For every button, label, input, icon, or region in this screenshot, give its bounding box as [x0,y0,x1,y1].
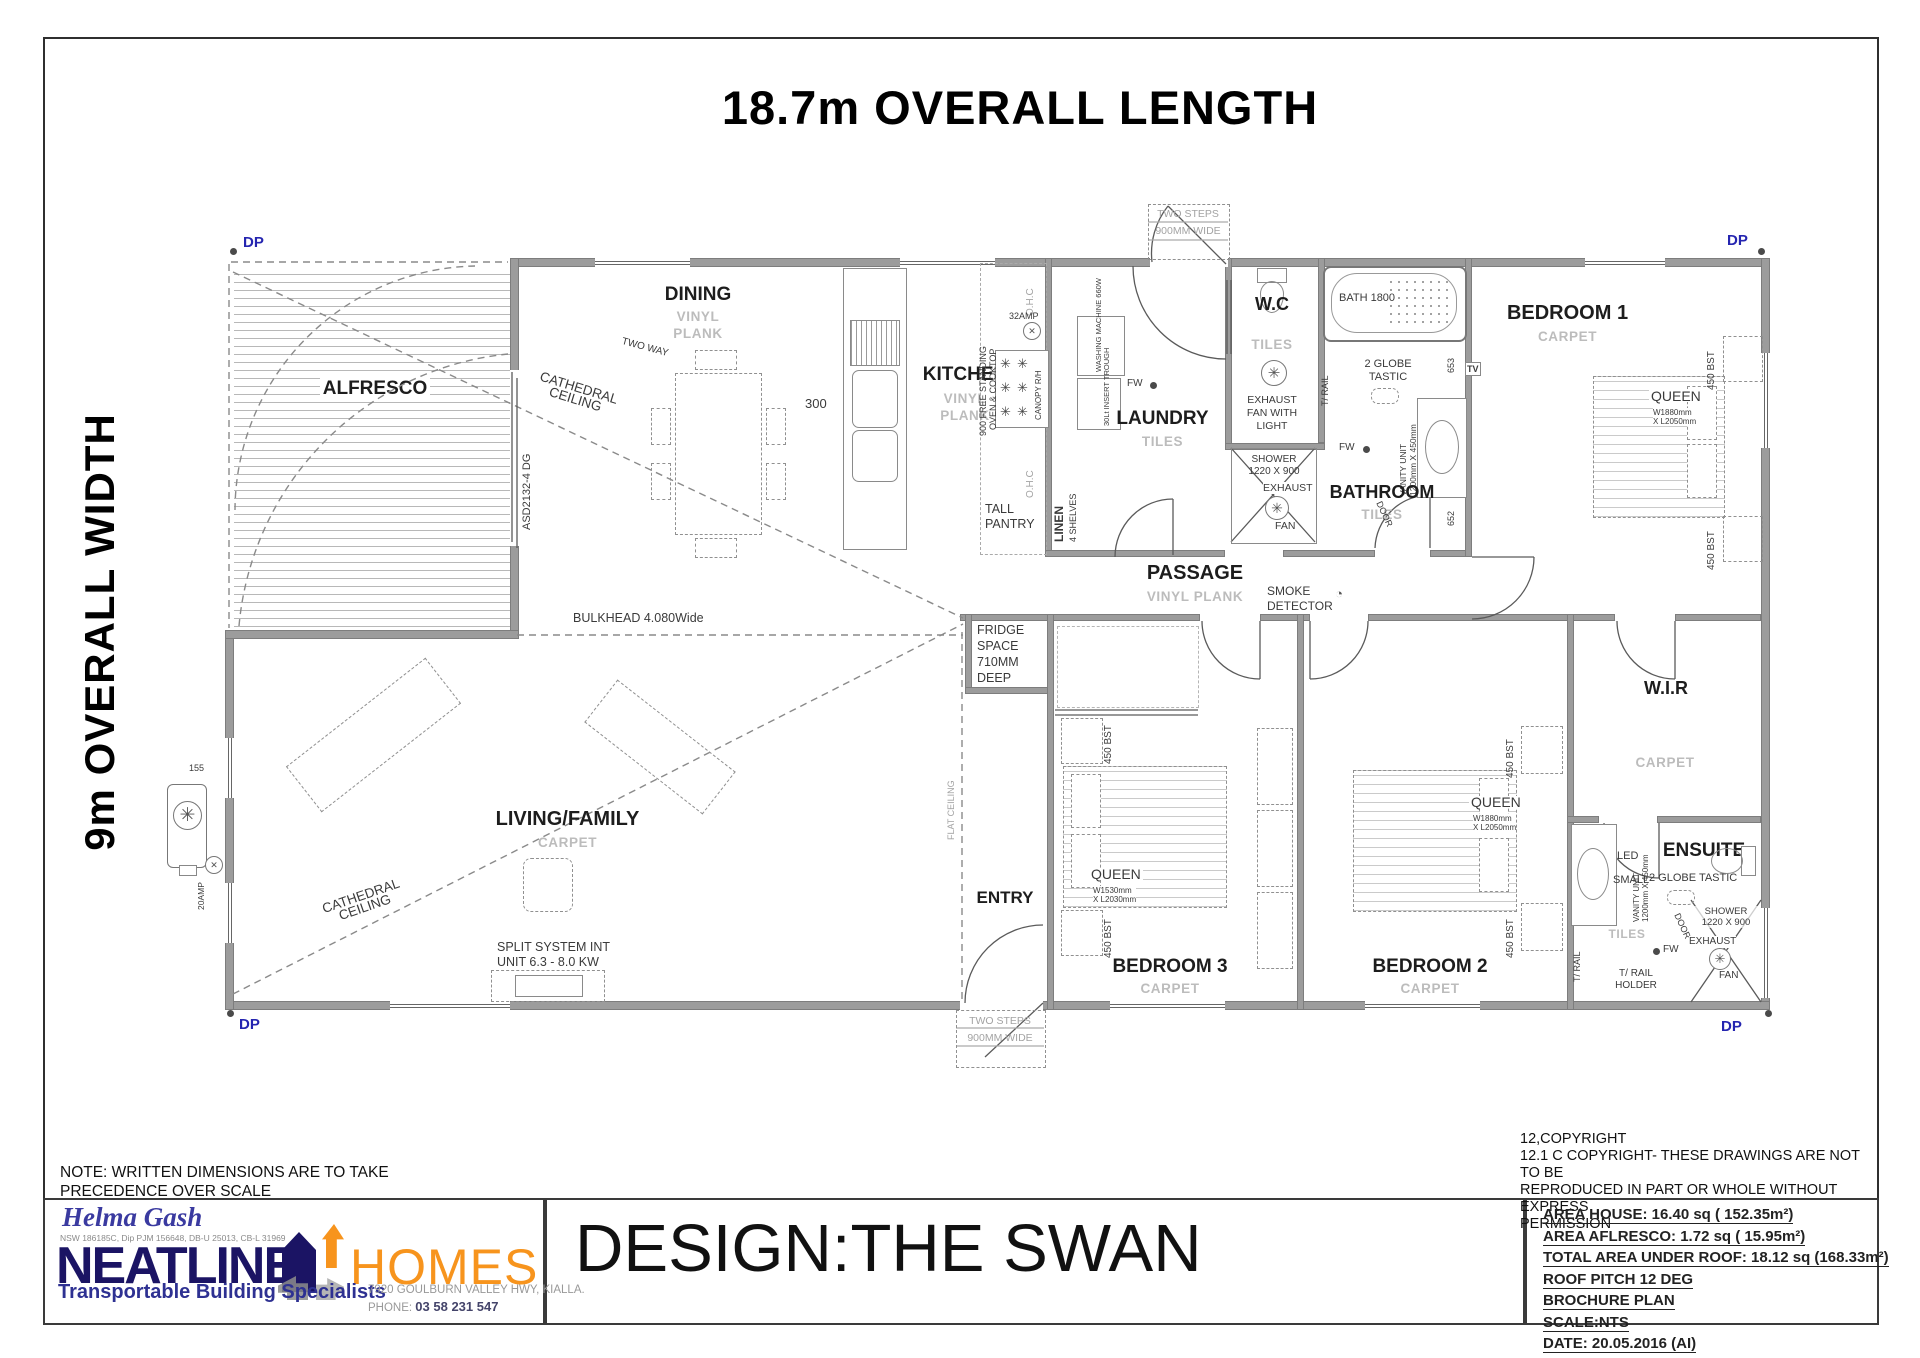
fw-dot-ensuite [1653,948,1660,955]
wall-left [225,630,234,1010]
dining-chair-6 [766,463,786,500]
floor-label-passage: VINYL PLANK [1125,588,1265,605]
bedroom3-robe-1 [1257,728,1293,805]
floor-label-living: CARPET [470,834,665,851]
wall-passage-bottom-3 [1368,614,1615,621]
living-rug [523,858,573,912]
window-living-left-1 [225,738,234,798]
external-ac-fan-icon: ✳ [173,801,202,830]
bst-label-bedroom1-a: 450 BST [1706,351,1718,390]
wall-fridge-left [965,614,972,694]
dining-chair-1 [695,350,737,370]
overall-width-title: 9m OVERALL WIDTH [76,347,124,917]
floor-label-wir: CARPET [1615,754,1715,771]
wall-passage-bottom-1 [960,614,1200,621]
bath-label: BATH 1800 [1337,292,1397,304]
window-living-bottom [390,1001,510,1010]
bedroom2-pillow-2 [1479,838,1509,892]
wall-passage-top-1 [1045,550,1225,557]
ensuite-fan-word: FAN [1719,970,1738,982]
room-label-laundry: LAUNDRY [1100,408,1225,430]
opening-asd-slider [510,370,519,546]
spec-roof-pitch: ROOF PITCH 12 DEG [1543,1271,1693,1289]
ensuite-fan-icon: ✳ [1709,948,1731,970]
fw-dot-bathroom [1363,446,1370,453]
wall-entry-bed3 [1047,614,1054,1010]
room-label-living: LIVING/FAMILY [470,808,665,831]
flat-ceiling-label: FLAT CEILING [945,780,957,840]
design-title: DESIGN:THE SWAN [575,1210,1202,1287]
globe-tastic-bathroom: 2 GLOBETASTIC [1351,358,1425,384]
room-label-bedroom2: BEDROOM 2 [1360,956,1500,978]
downpipe-dot-tl [230,248,237,255]
ensuite-toilet-cistern [1741,846,1756,876]
bedroom3-queen-dims: W1530mmX L2030mm [1093,886,1136,904]
oven-label-2: OVEN & COOKTOP [987,349,999,430]
linen-shelves-label: 4 SHELVES [1067,494,1079,542]
wall-wir-ensuite-1 [1567,816,1599,823]
downpipe-label-br: DP [1721,1018,1742,1035]
downpipe-dot-tr [1758,248,1765,255]
dining-chair-3 [651,408,671,445]
trail-holder-label: T/ RAILHOLDER [1607,968,1665,992]
room-label-bedroom1: BEDROOM 1 [1490,302,1645,325]
wc-exhaust-label: EXHAUSTFAN WITHLIGHT [1225,394,1319,433]
ensuite-vanity-basin [1577,848,1609,900]
kitchen-sink-1 [852,370,898,428]
helma-gash-signature: Helma Gash [62,1202,202,1233]
wall-living-top [225,630,519,639]
dim-652: 652 [1445,511,1457,526]
spec-brochure-plan: BROCHURE PLAN [1543,1292,1675,1310]
bathtub [1323,266,1467,342]
brand-tagline: Transportable Building Specialists [58,1281,386,1304]
room-label-passage: PASSAGE [1125,562,1265,585]
bedroom2-bst-2 [1521,903,1563,951]
wall-passage-bottom-4 [1675,614,1761,621]
bedroom1-pillow-2 [1687,444,1717,498]
external-ac-foot [179,865,197,876]
living-sofa-1 [286,658,461,813]
cathedral-ceiling-label-1: CATHEDRALCEILING [526,368,629,420]
window-bedroom1-top [1585,258,1665,267]
living-sofa-2 [584,680,735,815]
cooktop-burners: ✳✳✳✳✳✳ [997,352,1031,424]
wall-bed3-bed2 [1297,614,1304,1010]
amp32-label: 32AMP [1009,310,1039,322]
room-label-wir: W.I.R [1621,678,1711,699]
power-cross-icon-kitchen: ✕ [1023,322,1041,340]
spec-scale: SCALE:NTS [1543,1314,1629,1332]
dining-chair-4 [651,463,671,500]
spec-area-alfresco: AREA AFLRESCO: 1.72 sq ( 15.95m²) [1543,1228,1805,1246]
overall-length-title: 18.7m OVERALL LENGTH [640,80,1400,135]
floor-label-wc: TILES [1237,336,1307,353]
drawing-sheet: 18.7m OVERALL LENGTH 9m OVERALL WIDTH AL… [0,0,1920,1358]
bst-label-bedroom2-a: 450 BST [1505,739,1517,778]
bedroom2-queen-dims: W1880mmX L2050mm [1473,814,1516,832]
smoke-detector-label: SMOKEDETECTOR [1267,584,1333,614]
bedroom3-bst-2 [1061,910,1103,956]
fw-label-ensuite: FW [1663,944,1679,956]
linen-label: LINEN [1053,506,1065,542]
room-label-alfresco: ALFRESCO [295,378,455,400]
window-ensuite-right [1761,908,1770,998]
bathroom-shower-exhaust: EXHAUST [1263,482,1313,494]
bedroom2-queen-label: QUEEN [1469,796,1523,808]
steps-bottom-label1: TWO STEPS [965,1015,1035,1027]
window-living-left-2 [225,883,234,943]
spec-date: DATE: 20.05.2016 (AI) [1543,1335,1696,1353]
power-cross-icon-ac: ✕ [205,856,223,874]
ensuite-light-icon [1667,890,1695,905]
floor-label-dining: VINYLPLANK [643,308,753,342]
steps-top-label1: TWO STEPS [1153,208,1223,220]
dim-653: 653 [1445,358,1457,373]
bathroom-shower-label: SHOWER1220 X 900 [1235,454,1313,478]
brand-phone: PHONE: 03 58 231 547 [368,1299,498,1314]
brand-address: 7920 GOULBURN VALLEY HWY, KIALLA. [368,1284,585,1296]
split-system-label: SPLIT SYSTEM INTUNIT 6.3 - 8.0 KW [497,940,610,970]
dining-chair-5 [766,408,786,445]
room-label-bedroom3: BEDROOM 3 [1100,956,1240,978]
ensuite-exhaust-label: EXHAUST [1689,936,1736,948]
fw-label-laundry: FW [1127,378,1143,390]
wall-fridge-bottom [965,687,1054,694]
bedroom3-robe-3 [1257,892,1293,969]
kitchen-drainer [850,320,900,366]
canopy-label: CANOPY R/H [1033,370,1045,420]
wall-wir-ensuite-2 [1657,816,1761,823]
pantry-label: TALLPANTRY [985,502,1035,532]
spec-total-area: TOTAL AREA UNDER ROOF: 18.12 sq (168.33m… [1543,1249,1889,1267]
bedroom1-queen-dims: W1880mmX L2050mm [1653,408,1696,426]
downpipe-dot-bl [227,1010,234,1017]
room-label-dining: DINING [643,284,753,306]
bulkhead-label: BULKHEAD 4.080Wide [573,612,704,624]
window-bedroom3 [1110,1001,1225,1010]
window-dining [595,258,690,267]
bathroom-vanity-basin [1425,420,1459,474]
fridge-label: FRIDGESPACE710MMDEEP [977,622,1024,686]
steps-top-label2: 900MM WIDE [1151,225,1225,237]
amp20-label: 20AMP [195,882,207,910]
downpipe-dot-br [1765,1010,1772,1017]
bedroom1-queen-label: QUEEN [1649,390,1703,402]
bedroom3-queen-label: QUEEN [1089,868,1143,880]
bedroom2-bst-1 [1521,726,1563,774]
ohc-label-bottom: O.H.C [1025,470,1037,498]
bst-label-bedroom1-b: 450 BST [1706,531,1718,570]
bedroom1-bst-2 [1723,516,1763,562]
downpipe-label-tr: DP [1727,232,1748,249]
downpipe-label-bl: DP [239,1016,260,1033]
bst-label-bedroom3-b: 450 BST [1103,919,1115,958]
alfresco-deck-hatch [234,267,510,630]
ensuite-toilet-bowl [1711,848,1743,874]
bedroom3-bst-1 [1061,718,1103,764]
trail-label-ensuite: T/ RAIL [1571,951,1583,982]
window-bedroom2 [1365,1001,1480,1010]
fw-dot-laundry [1150,382,1157,389]
bathroom-light-icon [1371,388,1399,404]
note-text: NOTE: WRITTEN DIMENSIONS ARE TO TAKEPREC… [60,1163,389,1201]
cathedral-ceiling-label-2: CATHEDRALCEILING [312,874,414,929]
downpipe-label-tl: DP [243,234,264,251]
bst-label-bedroom3-a: 450 BST [1103,725,1115,764]
floor-label-ensuite: TILES [1595,926,1659,943]
floor-label-bedroom2: CARPET [1360,980,1500,997]
steps-bottom-label2: 900MM WIDE [963,1032,1037,1044]
dim-155: 155 [189,762,204,774]
fw-label-bathroom: FW [1339,442,1355,454]
bedroom3-robe-2 [1257,810,1293,887]
room-label-wc: W.C [1237,294,1307,315]
bedroom3-pillow-1 [1071,774,1101,828]
bedroom3-robe-top [1057,626,1199,708]
bathroom-shower-fan-icon: ✳ [1265,496,1289,520]
wc-exhaust-fan-icon: ✳ [1261,360,1287,386]
kitchen-sink-2 [852,430,898,482]
wall-passage-top-2 [1283,550,1375,557]
bathroom-shower-fan-word: FAN [1275,520,1295,532]
room-label-entry: ENTRY [963,888,1047,908]
asd-door-label: ASD2132-4 DG [521,454,533,530]
specs-list: AREA HOUSE: 16.40 sq ( 152.35m²) AREA AF… [1543,1206,1889,1357]
bedroom1-bst-1 [1723,336,1763,382]
dining-chair-2 [695,538,737,558]
floor-plan: ALFRESCO [225,258,1770,1010]
led-label: LED [1617,850,1638,862]
globe-tastic-ensuite: 2 GLOBE TASTIC [1649,872,1723,885]
wall-top [510,258,1770,267]
dim-300: 300 [805,398,827,410]
ensuite-shower-label: SHOWER1220 X 900 [1693,906,1759,928]
floor-label-laundry: TILES [1100,433,1225,450]
trail-label-bathroom: T/ RAIL [1319,375,1331,406]
spec-area-house: AREA HOUSE: 16.40 sq ( 152.35m²) [1543,1206,1793,1224]
dining-table [675,373,762,535]
vanity-label-ensuite-2: 1200mm X 450mm [1640,854,1652,922]
bst-label-bedroom2-b: 450 BST [1505,919,1517,958]
opening-front-door [960,1001,1043,1010]
floor-label-bedroom1: CARPET [1490,328,1645,345]
tv-label: TV [1465,362,1481,376]
floor-label-bedroom3: CARPET [1100,980,1240,997]
split-system-inner [515,975,583,997]
